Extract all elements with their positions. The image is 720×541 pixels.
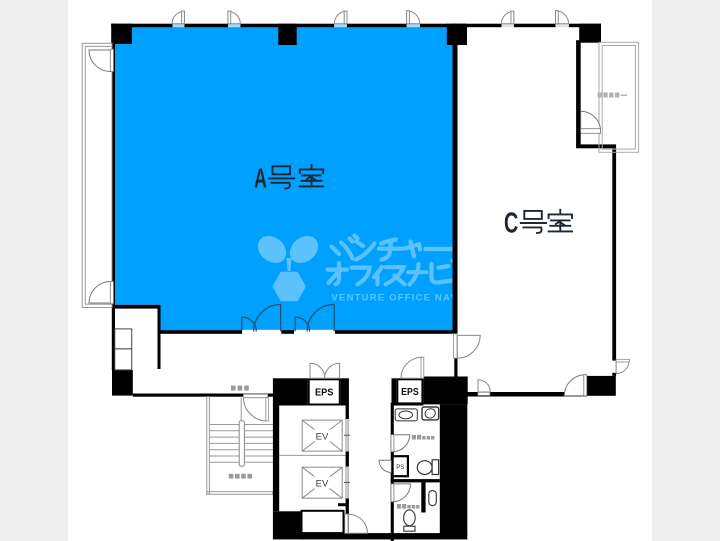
svg-text:A: A — [254, 162, 267, 193]
svg-text:EPS: EPS — [401, 386, 419, 398]
svg-text:C: C — [504, 208, 518, 240]
svg-text:EV: EV — [316, 478, 329, 489]
svg-text:PS: PS — [396, 465, 404, 471]
svg-text:EV: EV — [316, 431, 329, 442]
svg-text:EPS: EPS — [315, 387, 334, 399]
svg-text:VENTURE OFFICE NAVI: VENTURE OFFICE NAVI — [332, 293, 462, 304]
